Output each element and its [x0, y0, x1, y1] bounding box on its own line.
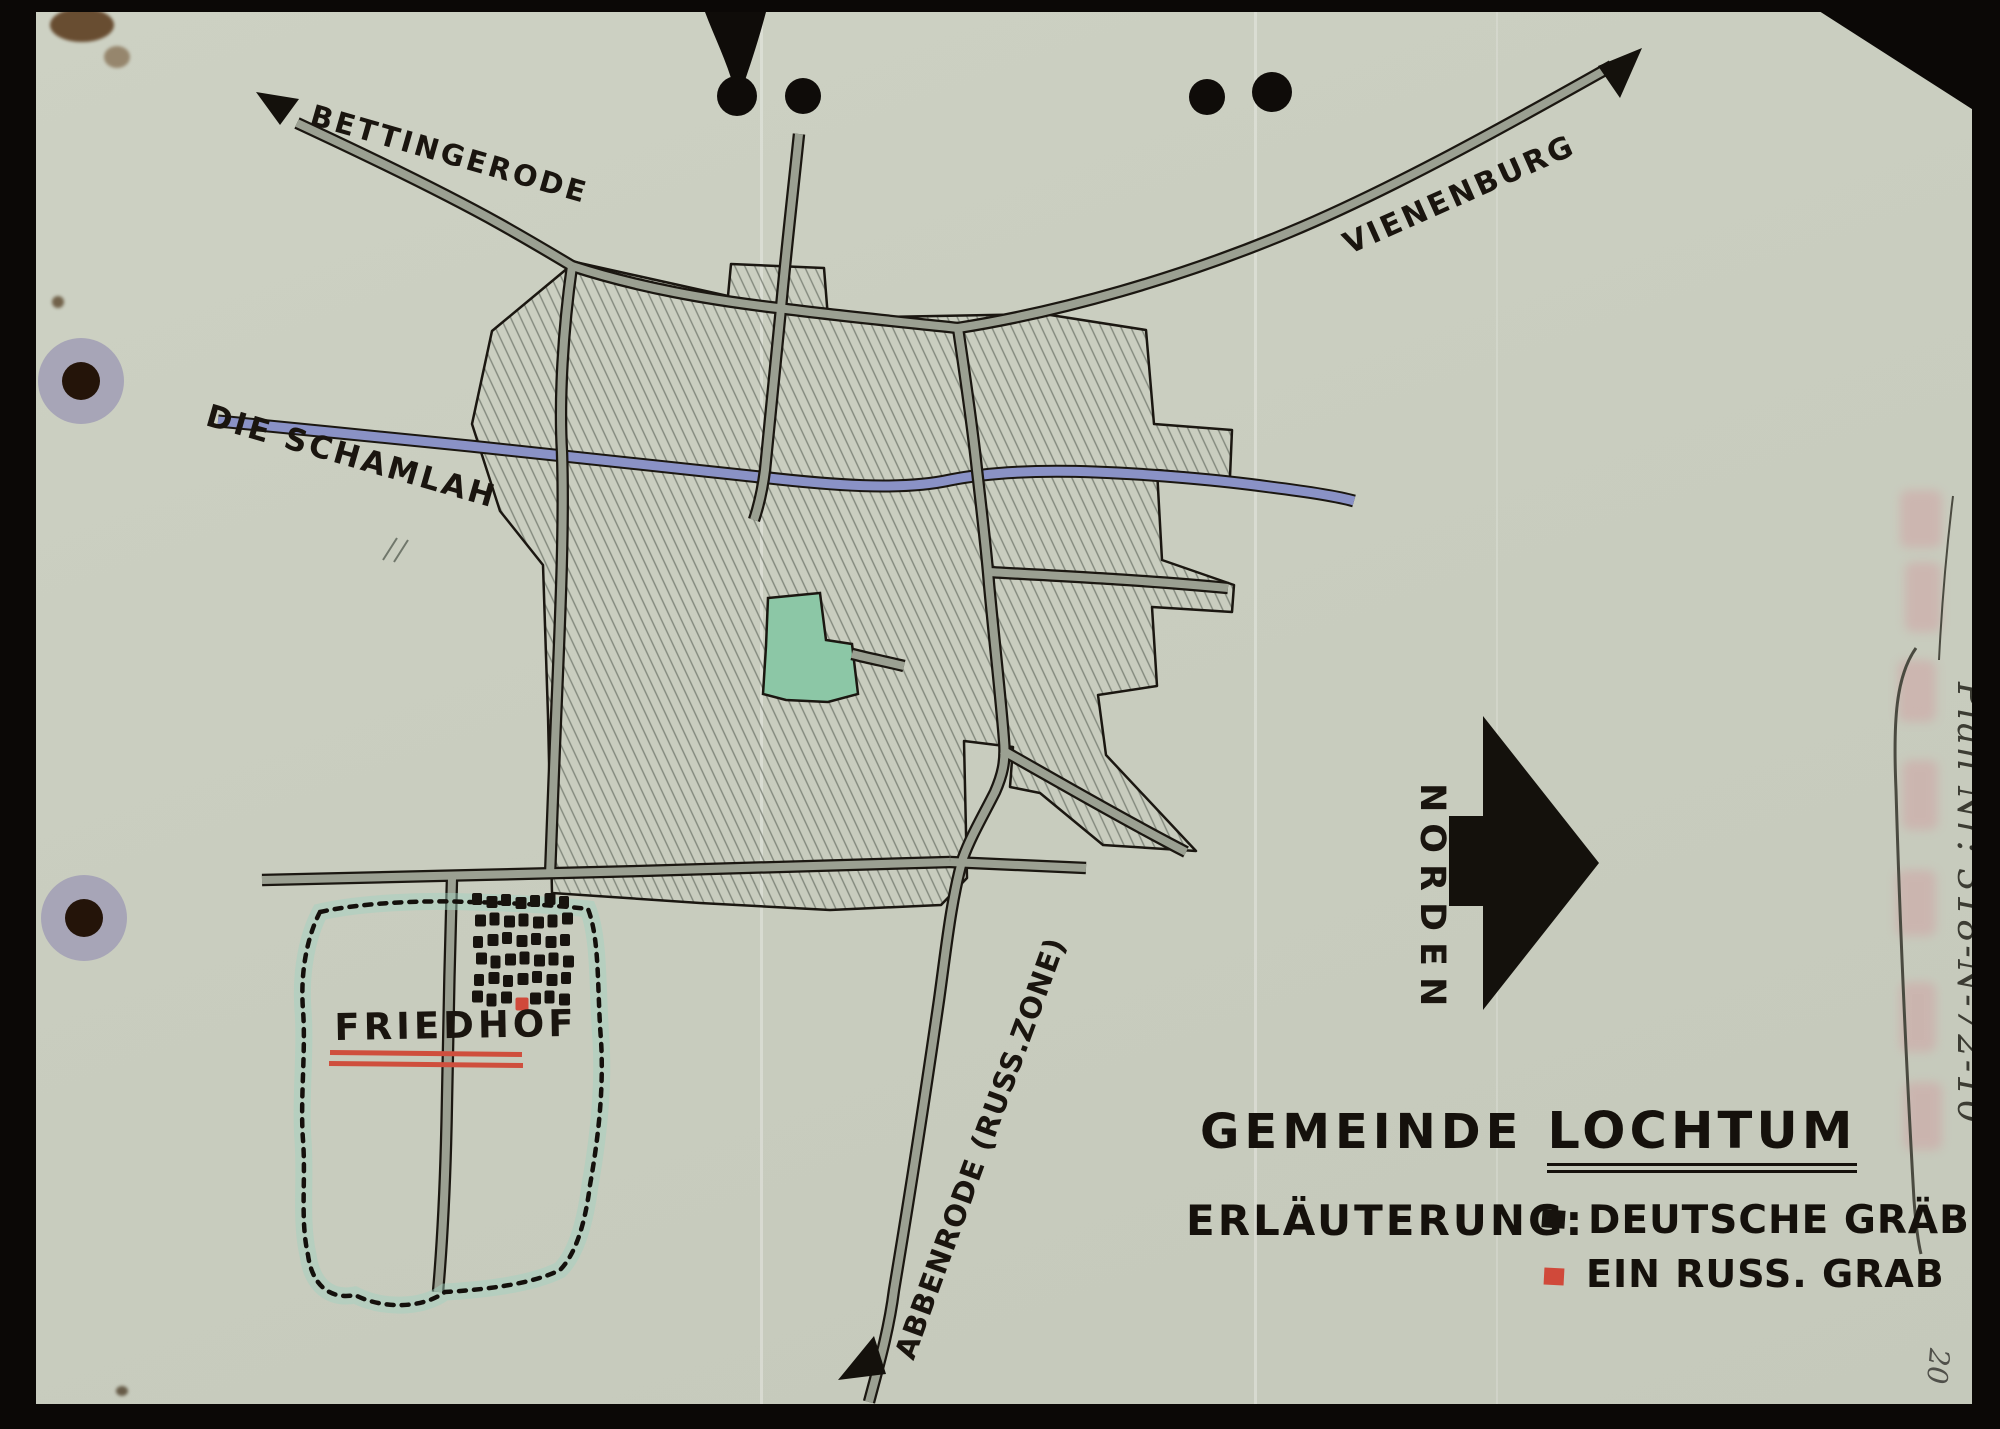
german-grave-marker — [562, 913, 573, 925]
german-grave-marker — [545, 893, 556, 905]
german-grave-marker — [560, 934, 570, 946]
german-graves-marker-icon — [1541, 1209, 1565, 1229]
german-grave-marker — [502, 932, 512, 944]
hole-punch — [65, 899, 103, 937]
bettingerode-arrow-icon — [256, 92, 299, 125]
title-prefix: GEMEINDE — [1200, 1104, 1523, 1160]
german-grave-marker — [491, 956, 501, 969]
german-grave-marker — [546, 936, 557, 948]
german-grave-marker — [549, 953, 559, 966]
ink-dots — [705, 12, 1292, 116]
frame-left — [0, 0, 36, 1429]
german-grave-marker — [559, 896, 569, 908]
pencil-tick-marks — [383, 538, 408, 562]
german-grave-marker — [490, 913, 500, 926]
german-grave-marker — [518, 973, 529, 985]
map-title: GEMEINDE LOCHTUM — [1200, 1102, 1857, 1173]
german-grave-marker — [532, 971, 542, 983]
german-grave-marker — [488, 934, 499, 946]
german-grave-marker — [533, 917, 544, 929]
german-grave-marker — [472, 893, 482, 905]
north-arrow-icon — [1449, 716, 1599, 1010]
pen-stroke — [1895, 496, 1953, 1254]
german-grave-marker — [501, 992, 512, 1004]
german-grave-marker — [520, 952, 530, 965]
german-grave-marker — [561, 972, 571, 984]
german-grave-marker — [474, 974, 484, 986]
german-grave-marker — [531, 933, 541, 945]
hole-punch — [62, 362, 100, 400]
german-grave-marker — [504, 916, 515, 928]
german-grave-marker — [475, 915, 486, 927]
german-grave-marker — [501, 894, 511, 906]
legend-item-russian-grave: EIN RUSS. GRAB — [1586, 1252, 1945, 1296]
german-grave-marker — [548, 915, 558, 928]
german-grave-marker — [517, 935, 528, 947]
german-grave-marker — [503, 975, 513, 987]
german-grave-marker — [563, 956, 574, 968]
title-name: LOCHTUM — [1547, 1102, 1856, 1173]
frame-bottom — [0, 1404, 2000, 1429]
german-grave-marker — [505, 954, 516, 966]
german-grave-marker — [516, 897, 527, 909]
frame-right — [1972, 0, 2000, 1429]
north-label: NORDEN — [1412, 783, 1452, 1017]
german-grave-marker — [519, 914, 529, 927]
german-grave-marker — [530, 895, 540, 907]
german-grave-marker — [547, 974, 558, 986]
german-grave-marker — [473, 936, 483, 948]
german-grave-marker — [489, 972, 500, 984]
german-grave-marker — [476, 953, 487, 965]
page-number: 20 — [1920, 1347, 1956, 1385]
german-grave-marker — [472, 991, 483, 1003]
frame-top — [0, 0, 2000, 12]
archival-map-photo: { "document": { "type": "hand-drawn ceme… — [0, 0, 2000, 1429]
vienenburg-arrow-icon — [1598, 48, 1642, 98]
legend-item-german-graves: DEUTSCHE GRÄBER — [1588, 1198, 2000, 1243]
cemetery-label: FRIEDHOF — [334, 1002, 578, 1049]
german-grave-marker — [534, 955, 545, 967]
russian-grave-marker-icon — [1544, 1267, 1565, 1285]
german-grave-marker — [487, 896, 498, 908]
legend-heading: ERLÄUTERUNG: — [1186, 1196, 1585, 1245]
